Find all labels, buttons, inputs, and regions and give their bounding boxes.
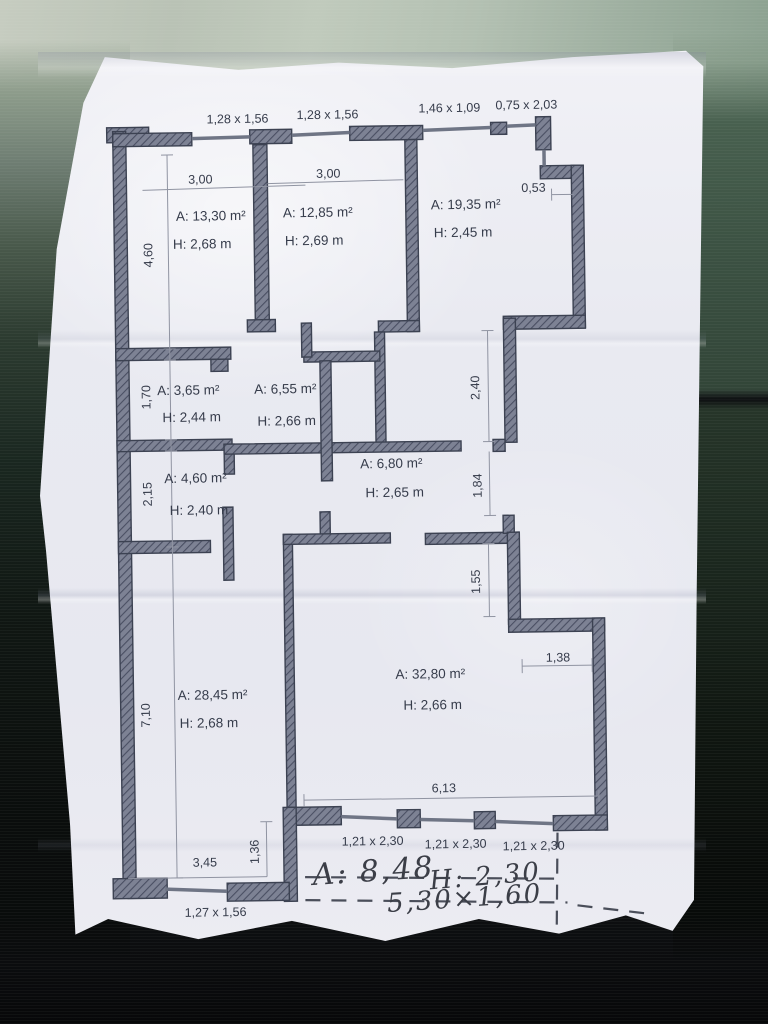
window-dim-label: 1,21 x 2,30 — [503, 839, 565, 854]
room-area-label: A: 32,80 m² — [395, 666, 465, 682]
dim-label: 1,36 — [248, 840, 262, 865]
window-dim-label: 1,27 x 1,56 — [185, 905, 247, 920]
window-dim-label: 1,46 x 1,09 — [418, 101, 480, 116]
dim-label: 2,15 — [141, 482, 155, 507]
dim-label: 1,38 — [546, 650, 571, 664]
dim-label: 3,00 — [188, 172, 213, 186]
room-height-label: H: 2,69 m — [285, 233, 344, 249]
window-dim-label: 1,28 x 1,56 — [206, 112, 268, 127]
dim-label: 0,53 — [521, 181, 546, 195]
room-height-label: H: 2,44 m — [162, 409, 221, 425]
window-dim-label: 1,21 x 2,30 — [425, 837, 487, 852]
dim-label: 2,40 — [468, 375, 482, 400]
dim-label: 1,55 — [469, 569, 483, 594]
dim-label: 7,10 — [139, 703, 153, 728]
room-height-label: H: 2,68 m — [173, 236, 232, 252]
room-height-label: H: 2,40 m — [170, 502, 229, 518]
dim-label: 1,70 — [139, 385, 153, 410]
room-height-label: H: 2,66 m — [403, 697, 462, 713]
room-height-label: H: 2,68 m — [180, 715, 239, 731]
room-area-label: A: 4,60 m² — [164, 470, 227, 486]
window-dim-label: 1,21 x 2,30 — [342, 834, 404, 849]
dim-label: 3,45 — [193, 855, 218, 869]
dim-label: 3,00 — [316, 167, 341, 181]
room-area-label: A: 6,55 m² — [254, 381, 317, 397]
window-dim-label: 0,75 x 2,03 — [495, 98, 557, 113]
room-height-label: H: 2,45 m — [434, 224, 493, 240]
dim-label: 1,84 — [470, 473, 484, 498]
room-area-label: A: 28,45 m² — [178, 687, 248, 703]
room-height-label: H: 2,65 m — [365, 484, 424, 500]
floor-plan-drawing: 1,28 x 1,56 1,28 x 1,56 1,46 x 1,09 0,75… — [0, 0, 768, 1024]
dim-label: 4,60 — [141, 243, 155, 268]
room-area-label: A: 3,65 m² — [157, 382, 220, 398]
room-height-label: H: 2,66 m — [257, 413, 316, 429]
window-dim-label: 1,28 x 1,56 — [296, 107, 358, 122]
room-area-label: A: 12,85 m² — [283, 204, 353, 220]
room-area-label: A: 19,35 m² — [431, 196, 501, 212]
dim-label: 6,13 — [432, 781, 457, 795]
room-area-label: A: 6,80 m² — [360, 455, 423, 471]
room-area-label: A: 13,30 m² — [176, 208, 246, 224]
